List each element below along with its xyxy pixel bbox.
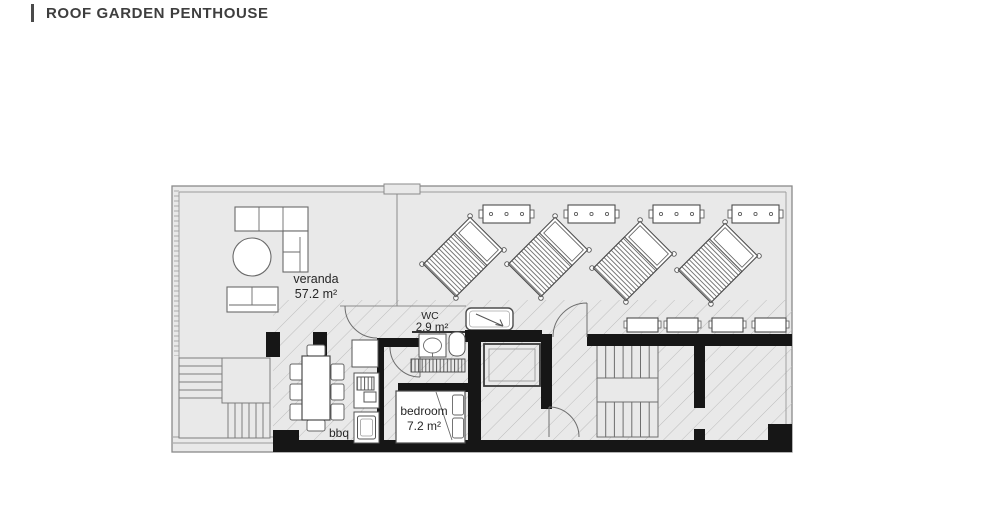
terrace-table: [728, 205, 783, 223]
interior-stairs: [597, 336, 658, 437]
page-title: ROOF GARDEN PENTHOUSE: [46, 5, 269, 22]
terrace-table: [479, 205, 534, 223]
veranda-label: veranda: [293, 272, 338, 286]
pillow: [453, 395, 464, 415]
wc-label: WC: [421, 310, 439, 322]
page-header: ROOF GARDEN PENTHOUSE: [31, 4, 269, 22]
wc-area: 2.9 m²: [416, 322, 449, 334]
pillow: [453, 418, 464, 438]
parapet-ticks: [174, 188, 179, 356]
skylight: [466, 308, 513, 330]
floor-plan: veranda 57.2 m² WC 2.9 m² bedroom 7.2 m²…: [0, 0, 1000, 500]
dining-table: [302, 356, 330, 420]
planter: [752, 318, 789, 332]
round-table: [233, 238, 271, 276]
planter: [709, 318, 746, 332]
bedroom-label: bedroom: [400, 404, 447, 418]
bbq-label: bbq: [329, 426, 349, 440]
loveseat: [227, 287, 278, 312]
parapet-notch: [384, 184, 420, 194]
title-accent-bar: [31, 4, 34, 22]
shower-strip: [411, 359, 465, 372]
toilet: [449, 332, 465, 356]
planter: [624, 318, 661, 332]
page: { "header": { "title": "ROOF GARDEN PENT…: [0, 0, 1000, 500]
bedroom-area: 7.2 m²: [407, 419, 441, 433]
bbq-counter: [352, 340, 379, 443]
terrace-table: [649, 205, 704, 223]
planter: [664, 318, 701, 332]
grill-icon: [357, 377, 374, 390]
exterior-stairs: [179, 358, 270, 438]
veranda-area: 57.2 m²: [295, 287, 337, 301]
wc-fixtures: [411, 332, 465, 372]
terrace-table: [564, 205, 619, 223]
